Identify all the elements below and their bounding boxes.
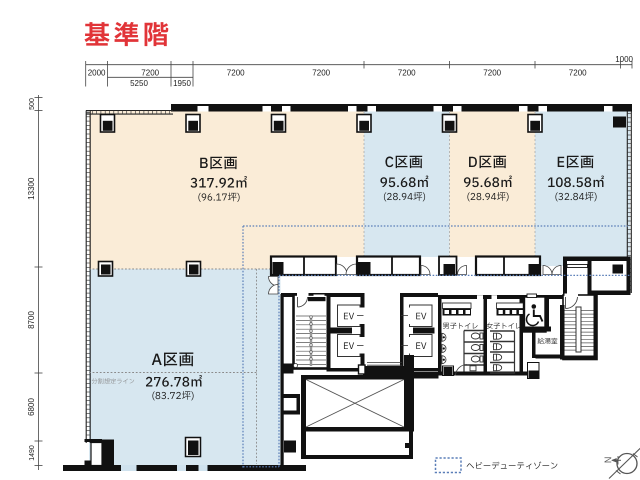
svg-text:5250: 5250 [130, 79, 148, 88]
svg-text:8700: 8700 [27, 311, 36, 329]
svg-text:7200: 7200 [227, 68, 245, 77]
svg-text:500: 500 [29, 98, 36, 110]
svg-text:1950: 1950 [173, 79, 191, 88]
svg-text:7200: 7200 [312, 68, 330, 77]
svg-text:2000: 2000 [88, 68, 106, 77]
svg-text:7200: 7200 [398, 68, 416, 77]
svg-text:6800: 6800 [27, 398, 36, 416]
svg-text:1000: 1000 [615, 55, 633, 64]
svg-text:13300: 13300 [27, 177, 36, 200]
svg-text:7200: 7200 [569, 68, 587, 77]
svg-text:7200: 7200 [483, 68, 501, 77]
svg-text:1490: 1490 [29, 445, 36, 461]
svg-text:7200: 7200 [141, 68, 159, 77]
